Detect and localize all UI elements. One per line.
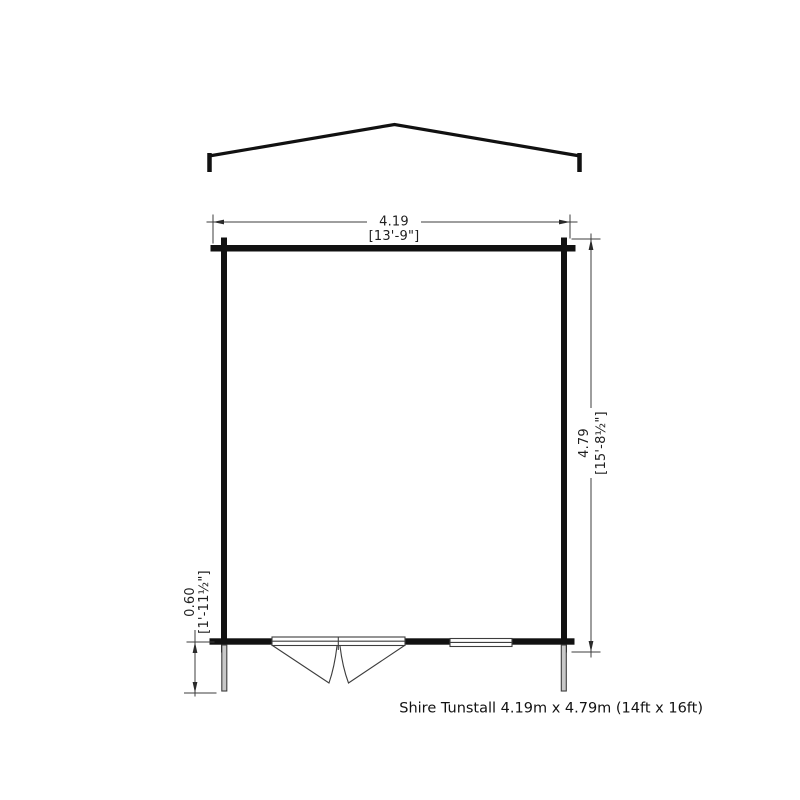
door-window-details (272, 637, 512, 683)
floor-plan-canvas: 4.19 [13'-9"] 4.79 [15'-8½"] (0, 0, 800, 800)
dim-door-projection-arrow-top (193, 642, 198, 653)
wall-bottom-right-segment (512, 638, 575, 644)
dim-door-projection-imperial-label: [1'-11½"] (197, 570, 212, 634)
door-leaf-right (340, 646, 405, 684)
dim-depth-arrow-bottom (589, 641, 594, 652)
dim-width: 4.19 [13'-9"] (207, 215, 578, 245)
roof-gable (209, 125, 580, 173)
post-left (222, 645, 227, 691)
product-caption: Shire Tunstall 4.19m x 4.79m (14ft x 16f… (399, 701, 703, 717)
dim-door-projection-arrow-bottom (193, 682, 198, 693)
dim-width-arrow-right (559, 220, 570, 225)
dim-depth-arrow-top (589, 239, 594, 250)
wall-right (561, 238, 567, 653)
dim-width-imperial-label: [13'-9"] (369, 229, 420, 244)
dimensions: 4.19 [13'-9"] 4.79 [15'-8½"] (183, 215, 609, 697)
wall-bottom-middle-segment (405, 638, 450, 644)
shed-plan-drawing: 4.19 [13'-9"] 4.79 [15'-8½"] (0, 0, 800, 800)
dim-door-projection: 0.60 [1'-11½"] (183, 570, 217, 696)
door-leaf-left (273, 646, 338, 684)
dim-door-projection-metric-label: 0.60 (183, 587, 198, 617)
dim-depth-imperial-label: [15'-8½"] (594, 411, 609, 475)
wall-bottom-left-segment (210, 638, 273, 644)
post-right (561, 645, 566, 691)
wall-left (221, 238, 227, 653)
dim-width-arrow-left (213, 220, 224, 225)
walls (210, 238, 576, 653)
roof-ridge-line (209, 125, 580, 157)
dim-depth: 4.79 [15'-8½"] (572, 234, 610, 658)
dim-width-metric-label: 4.19 (379, 215, 409, 230)
dim-depth-metric-label: 4.79 (577, 428, 592, 458)
wall-top (211, 245, 576, 252)
